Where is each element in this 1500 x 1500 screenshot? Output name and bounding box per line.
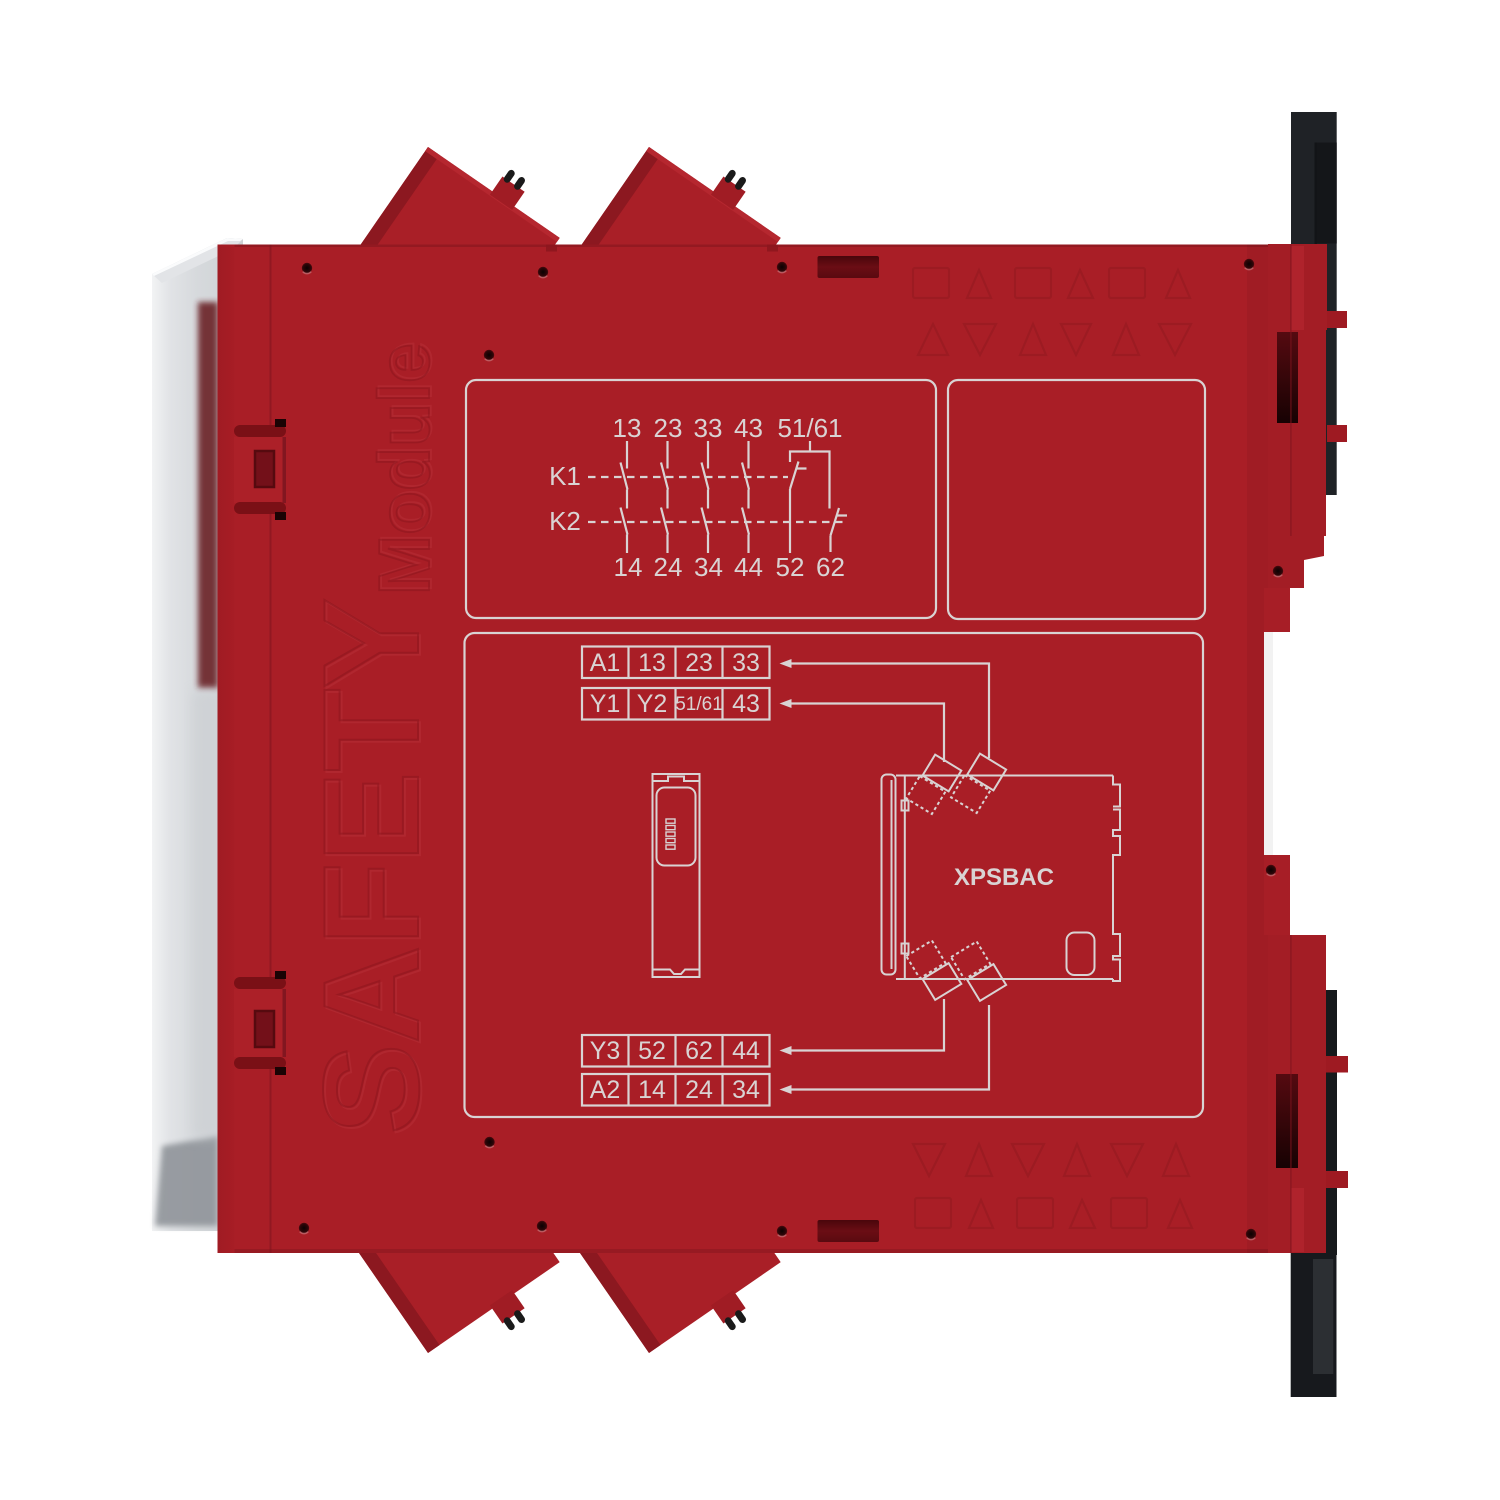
svg-text:51/61: 51/61: [777, 413, 842, 443]
svg-text:43: 43: [732, 690, 760, 718]
svg-text:Y1: Y1: [590, 690, 621, 718]
svg-text:33: 33: [694, 413, 723, 443]
svg-text:SAFETY: SAFETY: [295, 598, 447, 1135]
svg-text:A1: A1: [590, 649, 621, 677]
svg-text:XPSBAC: XPSBAC: [954, 864, 1054, 891]
svg-text:A2: A2: [590, 1076, 621, 1104]
svg-text:43: 43: [734, 413, 763, 443]
svg-text:34: 34: [732, 1076, 760, 1104]
svg-text:Y3: Y3: [590, 1037, 621, 1065]
svg-text:Y2: Y2: [637, 690, 668, 718]
svg-text:K1: K1: [549, 461, 581, 491]
svg-text:52: 52: [776, 552, 805, 582]
svg-text:14: 14: [614, 552, 643, 582]
svg-text:23: 23: [685, 649, 713, 677]
svg-text:14: 14: [638, 1076, 666, 1104]
svg-text:Module: Module: [365, 343, 445, 595]
svg-text:62: 62: [685, 1037, 713, 1065]
svg-text:13: 13: [613, 413, 642, 443]
svg-text:13: 13: [638, 649, 666, 677]
svg-text:44: 44: [732, 1037, 760, 1065]
svg-text:24: 24: [685, 1076, 713, 1104]
svg-text:34: 34: [694, 552, 723, 582]
svg-text:62: 62: [816, 552, 845, 582]
svg-text:24: 24: [654, 552, 683, 582]
svg-text:33: 33: [732, 649, 760, 677]
svg-text:44: 44: [734, 552, 763, 582]
svg-text:23: 23: [654, 413, 683, 443]
svg-text:52: 52: [638, 1037, 666, 1065]
svg-text:51/61: 51/61: [675, 694, 723, 715]
svg-text:K2: K2: [549, 506, 581, 536]
